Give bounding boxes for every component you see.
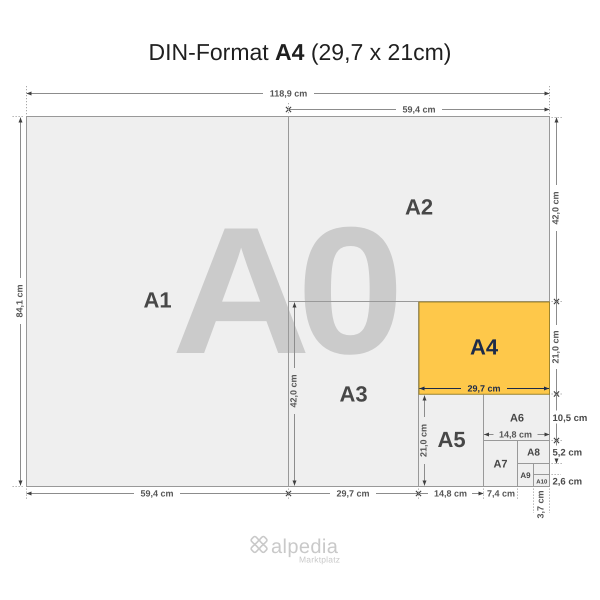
svg-text:A0: A0 (172, 190, 397, 392)
svg-text:29,7 cm: 29,7 cm (467, 384, 500, 394)
svg-text:59,4 cm: 59,4 cm (402, 105, 435, 115)
svg-text:42,0 cm: 42,0 cm (289, 374, 299, 407)
svg-text:A9: A9 (520, 471, 531, 480)
svg-text:7,4 cm: 7,4 cm (487, 489, 515, 499)
svg-text:A4: A4 (470, 335, 499, 360)
svg-text:5,2 cm: 5,2 cm (553, 448, 583, 459)
svg-text:A3: A3 (339, 382, 367, 407)
svg-text:21,0 cm: 21,0 cm (551, 330, 561, 363)
svg-text:118,9 cm: 118,9 cm (270, 89, 308, 99)
svg-text:14,8 cm: 14,8 cm (499, 430, 532, 440)
svg-text:A1: A1 (143, 288, 171, 313)
svg-text:A8: A8 (527, 448, 540, 459)
svg-text:21,0 cm: 21,0 cm (419, 424, 429, 457)
svg-text:A10: A10 (536, 479, 548, 486)
svg-text:84,1 cm: 84,1 cm (15, 284, 25, 317)
svg-text:29,7 cm: 29,7 cm (336, 489, 369, 499)
svg-text:2,6 cm: 2,6 cm (553, 477, 583, 488)
svg-text:42,0 cm: 42,0 cm (551, 191, 561, 224)
svg-text:A7: A7 (493, 459, 507, 471)
svg-text:Marktplatz: Marktplatz (299, 555, 340, 565)
svg-text:14,8 cm: 14,8 cm (434, 489, 467, 499)
svg-text:A5: A5 (437, 427, 465, 452)
svg-text:A6: A6 (510, 413, 524, 425)
svg-text:59,4 cm: 59,4 cm (140, 489, 173, 499)
svg-text:3,7 cm: 3,7 cm (536, 490, 546, 518)
svg-text:DIN-Format A4 (29,7 x 21cm): DIN-Format A4 (29,7 x 21cm) (149, 39, 452, 65)
svg-text:A2: A2 (405, 195, 433, 220)
svg-text:10,5 cm: 10,5 cm (553, 413, 588, 424)
